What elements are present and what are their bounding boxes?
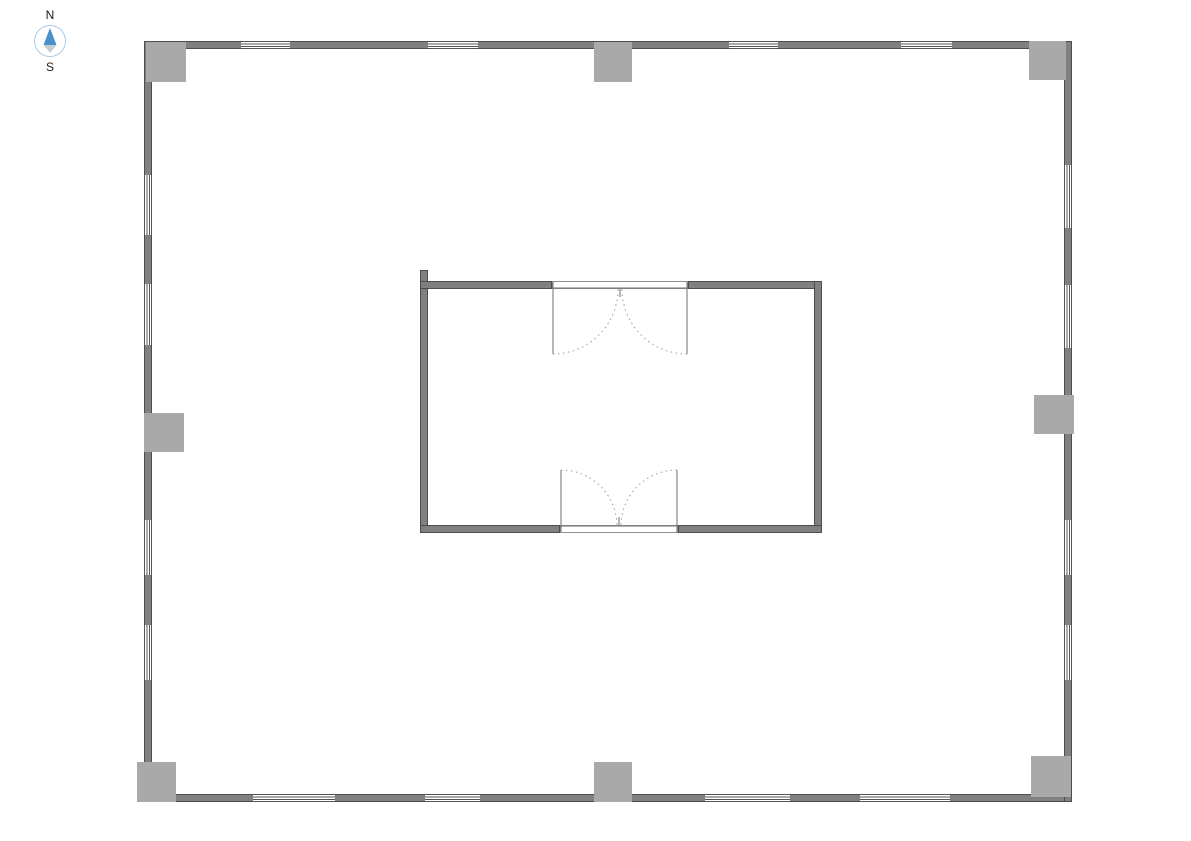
- column-northeast: [1029, 41, 1066, 80]
- window: [705, 794, 790, 802]
- window: [1064, 520, 1072, 575]
- double-door-south-swing-arc: [621, 470, 677, 526]
- column-west-mid: [144, 413, 184, 452]
- compass-north-label: N: [30, 8, 70, 22]
- floor-plan: N S: [0, 0, 1191, 841]
- window: [428, 41, 478, 49]
- double-door-south-swing-arc: [561, 470, 617, 526]
- window: [144, 284, 152, 345]
- core-wall-south-left: [420, 525, 560, 533]
- compass: N S: [30, 8, 70, 74]
- window: [144, 520, 152, 575]
- core-wall-south-right: [678, 525, 822, 533]
- column-southwest: [137, 762, 176, 802]
- window: [144, 175, 152, 235]
- core-wall-east: [814, 281, 822, 533]
- window: [1064, 165, 1072, 228]
- window: [1064, 625, 1072, 680]
- core-wall-north-left: [420, 281, 552, 289]
- window: [860, 794, 950, 802]
- window: [1064, 285, 1072, 348]
- double-door-north-opening: [552, 281, 688, 289]
- double-door-north-swing-arc: [553, 289, 618, 354]
- column-north-mid: [594, 42, 632, 82]
- column-east-mid: [1034, 395, 1074, 434]
- compass-south-label: S: [30, 60, 70, 74]
- window: [729, 41, 778, 49]
- column-south-mid: [594, 762, 632, 802]
- window: [901, 41, 952, 49]
- window: [253, 794, 335, 802]
- core-wall-west: [420, 270, 428, 533]
- column-northwest: [146, 42, 186, 82]
- double-door-north-swing-arc: [622, 289, 687, 354]
- window: [425, 794, 480, 802]
- core-wall-north-right: [688, 281, 822, 289]
- compass-icon: [33, 24, 67, 58]
- window: [144, 625, 152, 680]
- column-southeast: [1031, 756, 1071, 797]
- window: [241, 41, 290, 49]
- double-door-south-opening: [560, 525, 678, 533]
